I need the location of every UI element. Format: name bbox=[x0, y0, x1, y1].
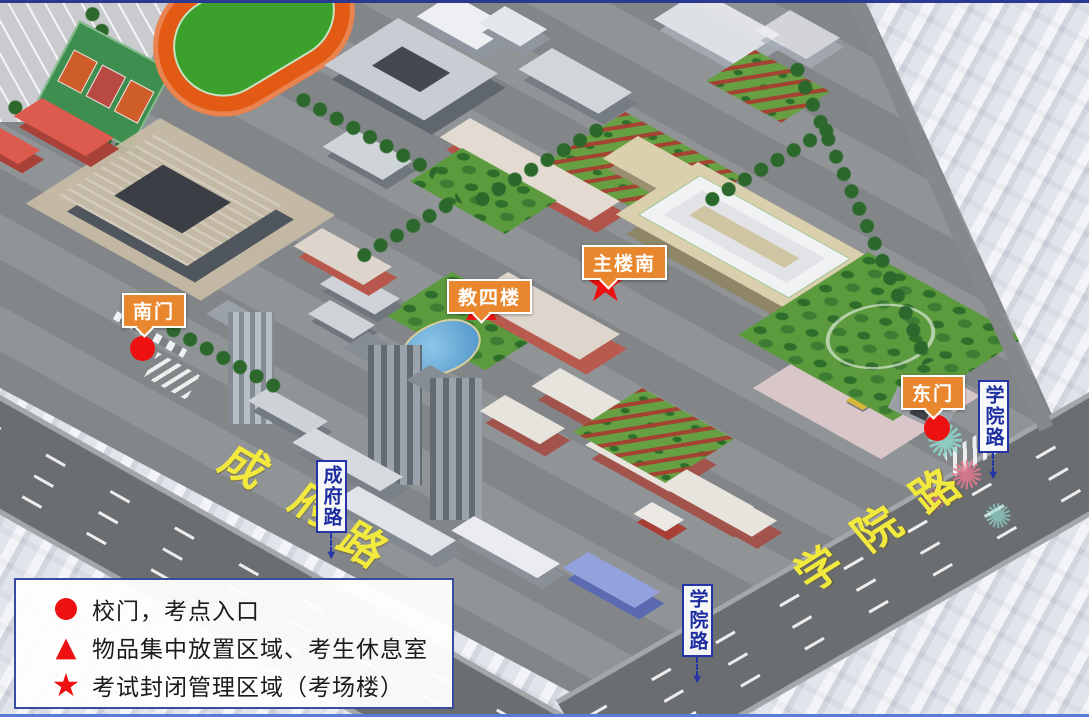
legend-item: 校门，考点入口 bbox=[40, 590, 452, 628]
legend-label: 校门，考点入口 bbox=[92, 592, 260, 626]
road-sign-chengfu: 成府路 ▼ bbox=[316, 460, 347, 561]
tree-row bbox=[352, 190, 464, 267]
fireworks-decoration: ✺ bbox=[984, 500, 1013, 534]
soccer-field bbox=[155, 0, 354, 115]
callout-south-gate: 南门 bbox=[122, 293, 186, 328]
arrow-down-icon: ▼ bbox=[327, 551, 335, 561]
road-sign-xueyuan-east: 学院路 ▼ bbox=[978, 380, 1009, 481]
white-building bbox=[451, 516, 560, 578]
callout-label: 教四楼 bbox=[447, 279, 532, 314]
slide-border-top bbox=[0, 0, 1089, 3]
courtyard bbox=[114, 165, 231, 234]
road-sign-text: 学院路 bbox=[978, 380, 1009, 453]
road-sign-xueyuan-south: 学院路 ▼ bbox=[682, 584, 713, 685]
legend-label: 物品集中放置区域、考生休息室 bbox=[92, 630, 428, 664]
callout-label: 主楼南 bbox=[582, 245, 667, 280]
legend: 校门，考点入口 ▲ 物品集中放置区域、考生休息室 ★ 考试封闭管理区域（考场楼） bbox=[14, 578, 454, 709]
red-roof-building bbox=[0, 128, 40, 164]
callout-east-gate: 东门 bbox=[901, 375, 965, 410]
callout-label: 南门 bbox=[122, 293, 186, 328]
tower-building bbox=[430, 378, 482, 520]
legend-symbol bbox=[40, 598, 92, 620]
brick-building bbox=[480, 395, 565, 444]
brick-building bbox=[657, 468, 777, 537]
legend-triangle-icon: ▲ bbox=[56, 634, 77, 661]
legend-star-icon: ★ bbox=[52, 669, 81, 701]
legend-label: 考试封闭管理区域（考场楼） bbox=[92, 668, 404, 702]
callout-jiao-4-building: 教四楼 bbox=[447, 279, 532, 314]
road-sign-text: 成府路 bbox=[316, 460, 347, 533]
legend-item: ▲ 物品集中放置区域、考生休息室 bbox=[40, 628, 452, 666]
arrow-down-icon: ▼ bbox=[693, 675, 701, 685]
callout-main-building-south: 主楼南 bbox=[582, 245, 667, 280]
marker-dot-south-gate bbox=[130, 336, 155, 361]
gray-building bbox=[518, 48, 632, 114]
legend-symbol: ★ bbox=[40, 669, 92, 701]
legend-dot-icon bbox=[55, 598, 77, 620]
road-sign-text: 学院路 bbox=[682, 584, 713, 657]
marker-dot-east-gate bbox=[924, 415, 950, 441]
faded-building bbox=[756, 10, 840, 59]
legend-item: ★ 考试封闭管理区域（考场楼） bbox=[40, 666, 452, 704]
legend-symbol: ▲ bbox=[40, 634, 92, 661]
campus-map: ✺ ✺ ✺ ✺ 成 府 路 学 院 路 成府路 ▼ 学院路 ▼ 学院路 ▼ ▲ … bbox=[0, 0, 1089, 717]
red-cube-building bbox=[634, 502, 684, 532]
arrow-down-icon: ▼ bbox=[989, 471, 997, 481]
garden-path bbox=[803, 290, 958, 382]
courtyard bbox=[372, 46, 450, 92]
blue-roof-building bbox=[563, 552, 660, 608]
